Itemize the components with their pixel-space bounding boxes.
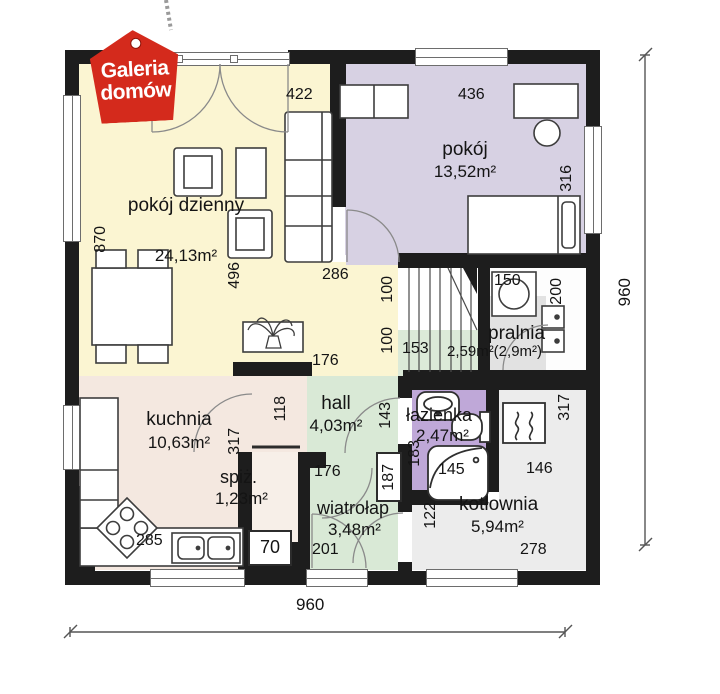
dim-100a: 100 bbox=[379, 276, 397, 303]
sofa bbox=[285, 112, 332, 262]
sink-drain bbox=[226, 546, 229, 549]
dim-286: 286 bbox=[322, 266, 349, 284]
laundry-sink bbox=[542, 330, 564, 352]
logo-hole bbox=[130, 38, 142, 50]
armchair bbox=[174, 148, 222, 196]
chair bbox=[138, 345, 168, 363]
logo-text: Galeria domów bbox=[99, 57, 172, 105]
dim-187-box: 187 bbox=[376, 452, 402, 502]
room-area-laundry: 2,59m²(2,9m²) bbox=[447, 344, 542, 361]
room-area-bedroom: 13,52m² bbox=[400, 163, 530, 182]
dim-118: 118 bbox=[272, 396, 290, 422]
dim-436: 436 bbox=[458, 86, 485, 104]
room-label-living: pokój dzienny bbox=[118, 192, 254, 219]
door-arc bbox=[347, 210, 399, 262]
dim-200: 200 bbox=[548, 278, 566, 305]
door-arc bbox=[220, 64, 288, 132]
drain-dot bbox=[555, 339, 559, 343]
logo-chain bbox=[166, 0, 171, 30]
coffee-table bbox=[236, 148, 266, 198]
dim-176-vestibule: 176 bbox=[314, 463, 341, 481]
room-label-pantry: spiż. bbox=[220, 468, 257, 488]
dim-176-hall: 176 bbox=[312, 352, 339, 370]
room-area-kitchen: 10,63m² bbox=[114, 434, 244, 453]
drain-dot bbox=[555, 315, 559, 319]
pillow bbox=[562, 202, 575, 248]
boiler-fixture bbox=[503, 403, 545, 443]
dim-317-boiler: 317 bbox=[556, 394, 574, 421]
dining-table bbox=[92, 268, 172, 345]
dim-143: 143 bbox=[377, 402, 395, 429]
living-furniture bbox=[92, 112, 332, 363]
dim-overall-width: 960 bbox=[296, 596, 324, 615]
dim-150: 150 bbox=[494, 272, 521, 290]
desk bbox=[514, 84, 578, 118]
room-area-bathroom: 2,47m² bbox=[416, 427, 469, 446]
dim-145: 145 bbox=[438, 461, 465, 479]
dim-187: 187 bbox=[380, 464, 398, 491]
logo-line2: domów bbox=[100, 79, 172, 105]
room-area-vestibule: 3,48m² bbox=[328, 521, 381, 540]
dim-316: 316 bbox=[558, 165, 576, 192]
room-area-hall: 4,03m² bbox=[292, 417, 380, 436]
dim-870: 870 bbox=[92, 226, 110, 253]
stairs-arrow bbox=[463, 268, 477, 294]
dim-100b: 100 bbox=[379, 327, 397, 354]
room-area-pantry: 1,23m² bbox=[215, 490, 268, 509]
room-label-bathroom: łazienka bbox=[406, 406, 472, 426]
dim-422: 422 bbox=[286, 86, 313, 104]
dim-122: 122 bbox=[422, 502, 440, 529]
dim-278: 278 bbox=[520, 541, 547, 559]
floor-plan-canvas: Galeria domów pokój dzienny 24,13m² pokó… bbox=[0, 0, 720, 694]
room-label-bedroom: pokój bbox=[400, 140, 530, 161]
dim-285: 285 bbox=[136, 532, 163, 550]
room-area-boiler: 5,94m² bbox=[471, 518, 524, 537]
sink-drain bbox=[196, 546, 199, 549]
dim-183: 183 bbox=[406, 440, 424, 467]
dim-496: 496 bbox=[226, 262, 244, 289]
dim-153: 153 bbox=[402, 340, 429, 358]
chair-round bbox=[534, 120, 560, 146]
dim-146: 146 bbox=[526, 460, 553, 478]
room-label-laundry: pralnia bbox=[488, 324, 545, 345]
room-label-boiler: kotłownia bbox=[459, 495, 538, 516]
dim-70: 70 bbox=[260, 538, 280, 558]
dim-overall-height: 960 bbox=[616, 278, 635, 306]
boiler-icon bbox=[503, 403, 545, 443]
dim-201: 201 bbox=[312, 541, 339, 559]
room-label-kitchen: kuchnia bbox=[118, 410, 240, 431]
chair bbox=[96, 345, 126, 363]
room-label-hall: hall bbox=[300, 394, 372, 415]
dim-317-kitchen: 317 bbox=[226, 428, 244, 455]
kitchen-counter-left bbox=[80, 398, 118, 528]
dim-70-box: 70 bbox=[248, 530, 292, 566]
